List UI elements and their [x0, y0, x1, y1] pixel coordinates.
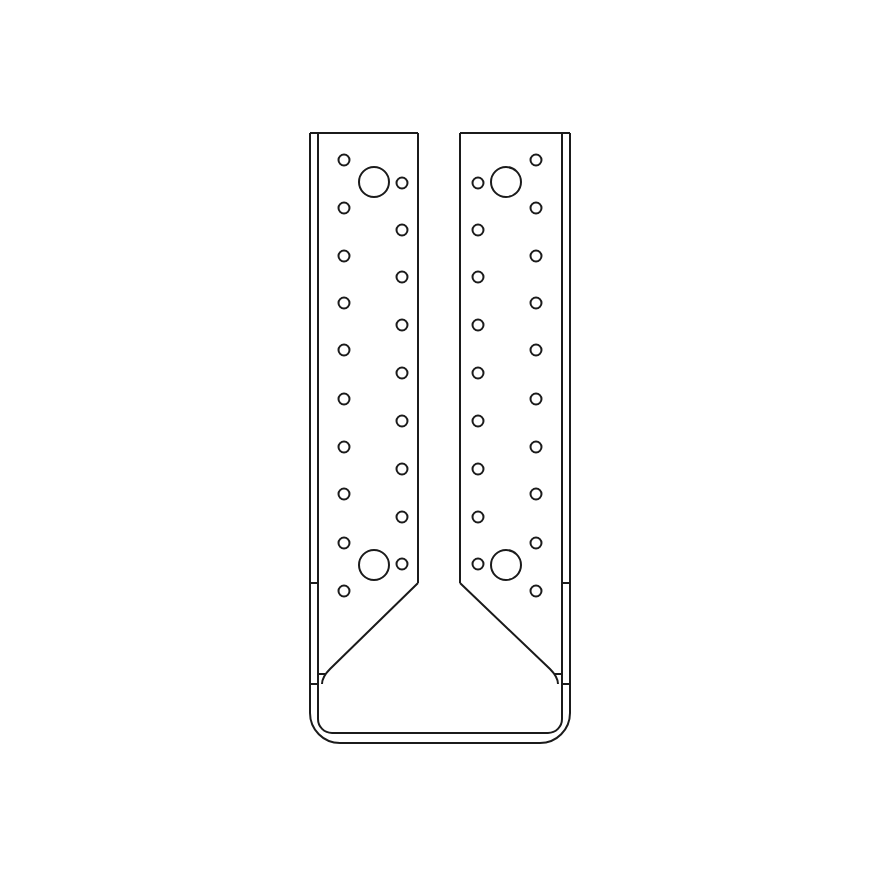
left-flange-bottom-large-hole — [359, 550, 389, 580]
right-flange-outer-hole-column-hole-5 — [531, 345, 542, 356]
right-flange-outer-hole-column-hole-8 — [531, 489, 542, 500]
left-flange-inner-hole-column-hole-8 — [397, 512, 408, 523]
left-flange-inner-hole-column-hole-5 — [397, 368, 408, 379]
hanger-drawing — [0, 0, 880, 880]
right-flange-outer-hole-column-hole-4 — [531, 298, 542, 309]
left-flange-inner-hole-column-hole-4 — [397, 320, 408, 331]
right-flange-outer-hole-column-hole-9 — [531, 538, 542, 549]
left-flange-outer-hole-column-hole-2 — [339, 203, 350, 214]
left-flange-outer-hole-column-hole-10 — [339, 586, 350, 597]
left-flange-outer-hole-column-hole-6 — [339, 394, 350, 405]
left-flange-outer-hole-column-hole-3 — [339, 251, 350, 262]
right-flange-inner-hole-column-hole-5 — [473, 368, 484, 379]
left-flange-outer-hole-column-hole-8 — [339, 489, 350, 500]
left-flange-outer-hole-column-hole-7 — [339, 442, 350, 453]
left-flange-inner-hole-column-hole-2 — [397, 225, 408, 236]
right-flange-top-large-hole — [491, 167, 521, 197]
right-flange-inner-hole-column-hole-7 — [473, 464, 484, 475]
right-gusset-fold-edge — [460, 583, 558, 684]
right-flange-inner-hole-column-hole-2 — [473, 225, 484, 236]
right-flange-outer-hole-column-hole-10 — [531, 586, 542, 597]
right-flange-outer-hole-column-hole-6 — [531, 394, 542, 405]
right-flange-bottom-large-hole — [491, 550, 521, 580]
left-flange-outer-hole-column-hole-4 — [339, 298, 350, 309]
left-flange-inner-hole-column-hole-6 — [397, 416, 408, 427]
drawing-canvas — [0, 0, 880, 880]
left-flange-outer-hole-column-hole-9 — [339, 538, 350, 549]
right-flange-inner-hole-column-hole-1 — [473, 178, 484, 189]
right-flange-inner-hole-column-hole-6 — [473, 416, 484, 427]
left-flange-outer-hole-column-hole-1 — [339, 155, 350, 166]
right-flange-outer-hole-column-hole-2 — [531, 203, 542, 214]
left-flange-top-large-hole — [359, 167, 389, 197]
inner-thickness-contour — [318, 133, 562, 733]
right-flange-inner-hole-column-hole-3 — [473, 272, 484, 283]
right-flange-inner-hole-column-hole-4 — [473, 320, 484, 331]
right-flange-outer-hole-column-hole-7 — [531, 442, 542, 453]
left-gusset-fold-edge — [322, 583, 418, 684]
left-flange-inner-hole-column-hole-9 — [397, 559, 408, 570]
right-flange-inner-hole-column-hole-9 — [473, 559, 484, 570]
left-flange-inner-hole-column-hole-7 — [397, 464, 408, 475]
right-flange-inner-hole-column-hole-8 — [473, 512, 484, 523]
left-flange-outer-hole-column-hole-5 — [339, 345, 350, 356]
right-flange-outer-hole-column-hole-1 — [531, 155, 542, 166]
right-flange-outer-hole-column-hole-3 — [531, 251, 542, 262]
left-flange-inner-hole-column-hole-1 — [397, 178, 408, 189]
left-flange-inner-hole-column-hole-3 — [397, 272, 408, 283]
